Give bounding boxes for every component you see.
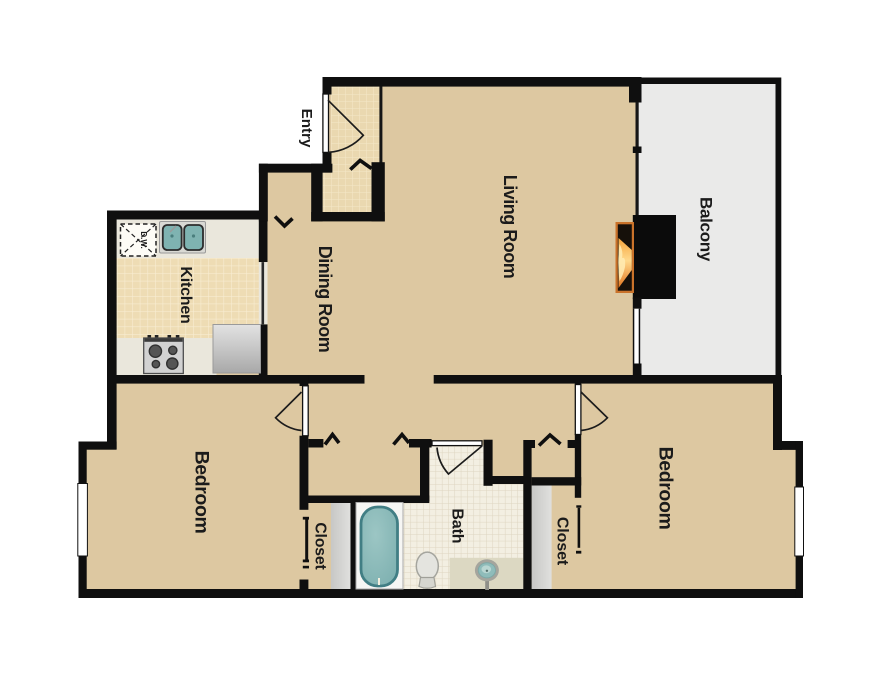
svg-text:Closet: Closet	[311, 522, 328, 570]
svg-text:Living Room: Living Room	[500, 175, 520, 279]
svg-text:Kitchen: Kitchen	[177, 266, 194, 323]
svg-text:Bedroom: Bedroom	[655, 447, 677, 530]
svg-text:Balcony: Balcony	[697, 197, 716, 262]
svg-text:Bedroom: Bedroom	[191, 451, 213, 534]
svg-text:Dining Room: Dining Room	[315, 246, 335, 352]
svg-text:Entry: Entry	[298, 109, 315, 148]
svg-text:Bath: Bath	[449, 508, 466, 543]
svg-text:Closet: Closet	[554, 517, 571, 566]
svg-text:D.W.: D.W.	[139, 231, 148, 248]
